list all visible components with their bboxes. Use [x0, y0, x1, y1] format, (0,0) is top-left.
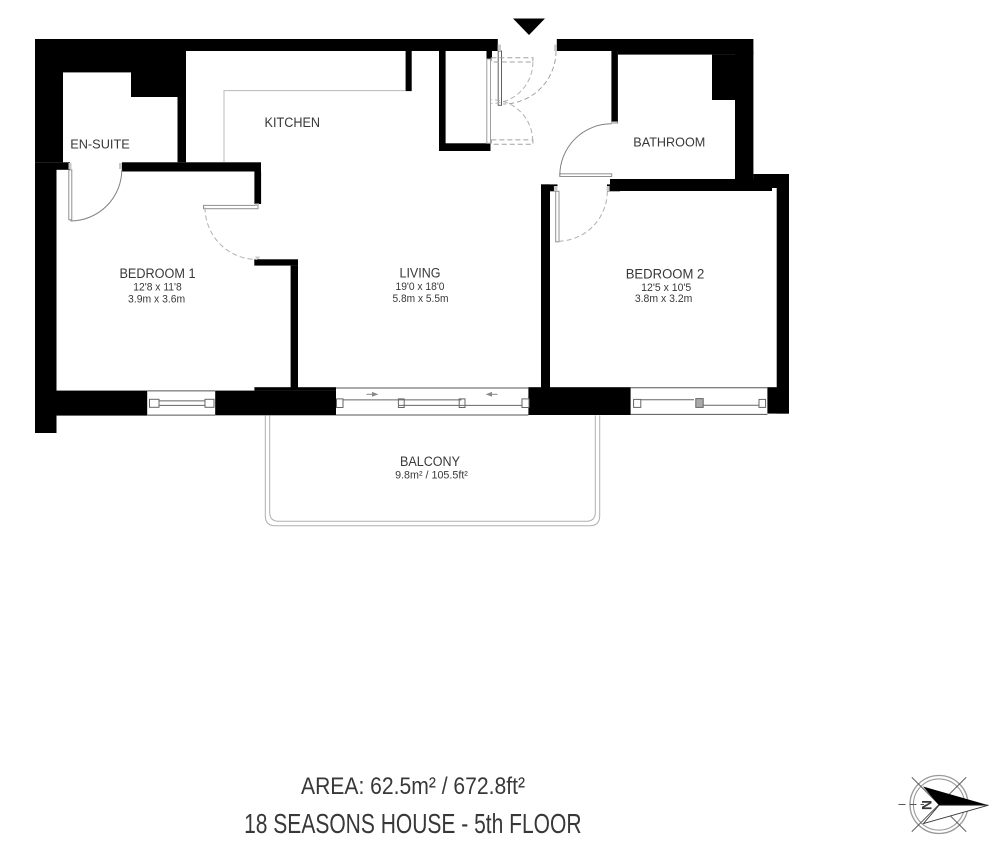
svg-text:3.8m x 3.2m: 3.8m x 3.2m [635, 293, 693, 305]
svg-text:12'5 x 10'5: 12'5 x 10'5 [641, 282, 691, 294]
svg-text:9.8m² / 105.5ft²: 9.8m² / 105.5ft² [395, 469, 468, 481]
svg-text:BATHROOM: BATHROOM [633, 135, 705, 150]
svg-text:12'8 x 11'8: 12'8 x 11'8 [133, 281, 182, 293]
svg-text:19'0 x 18'0: 19'0 x 18'0 [396, 281, 445, 293]
svg-text:BEDROOM 1: BEDROOM 1 [119, 266, 195, 281]
svg-text:BEDROOM 2: BEDROOM 2 [626, 267, 705, 282]
svg-text:5.8m x 5.5m: 5.8m x 5.5m [393, 293, 449, 305]
svg-text:LIVING: LIVING [400, 266, 441, 281]
svg-text:BALCONY: BALCONY [400, 454, 460, 469]
svg-text:3.9m x 3.6m: 3.9m x 3.6m [128, 293, 185, 305]
svg-text:AREA: 62.5m² / 672.8ft²: AREA: 62.5m² / 672.8ft² [301, 773, 525, 800]
svg-text:18 SEASONS HOUSE - 5th FLOOR: 18 SEASONS HOUSE - 5th FLOOR [244, 808, 581, 839]
svg-text:N: N [919, 800, 935, 810]
svg-text:EN-SUITE: EN-SUITE [70, 137, 130, 152]
svg-text:KITCHEN: KITCHEN [265, 115, 321, 130]
